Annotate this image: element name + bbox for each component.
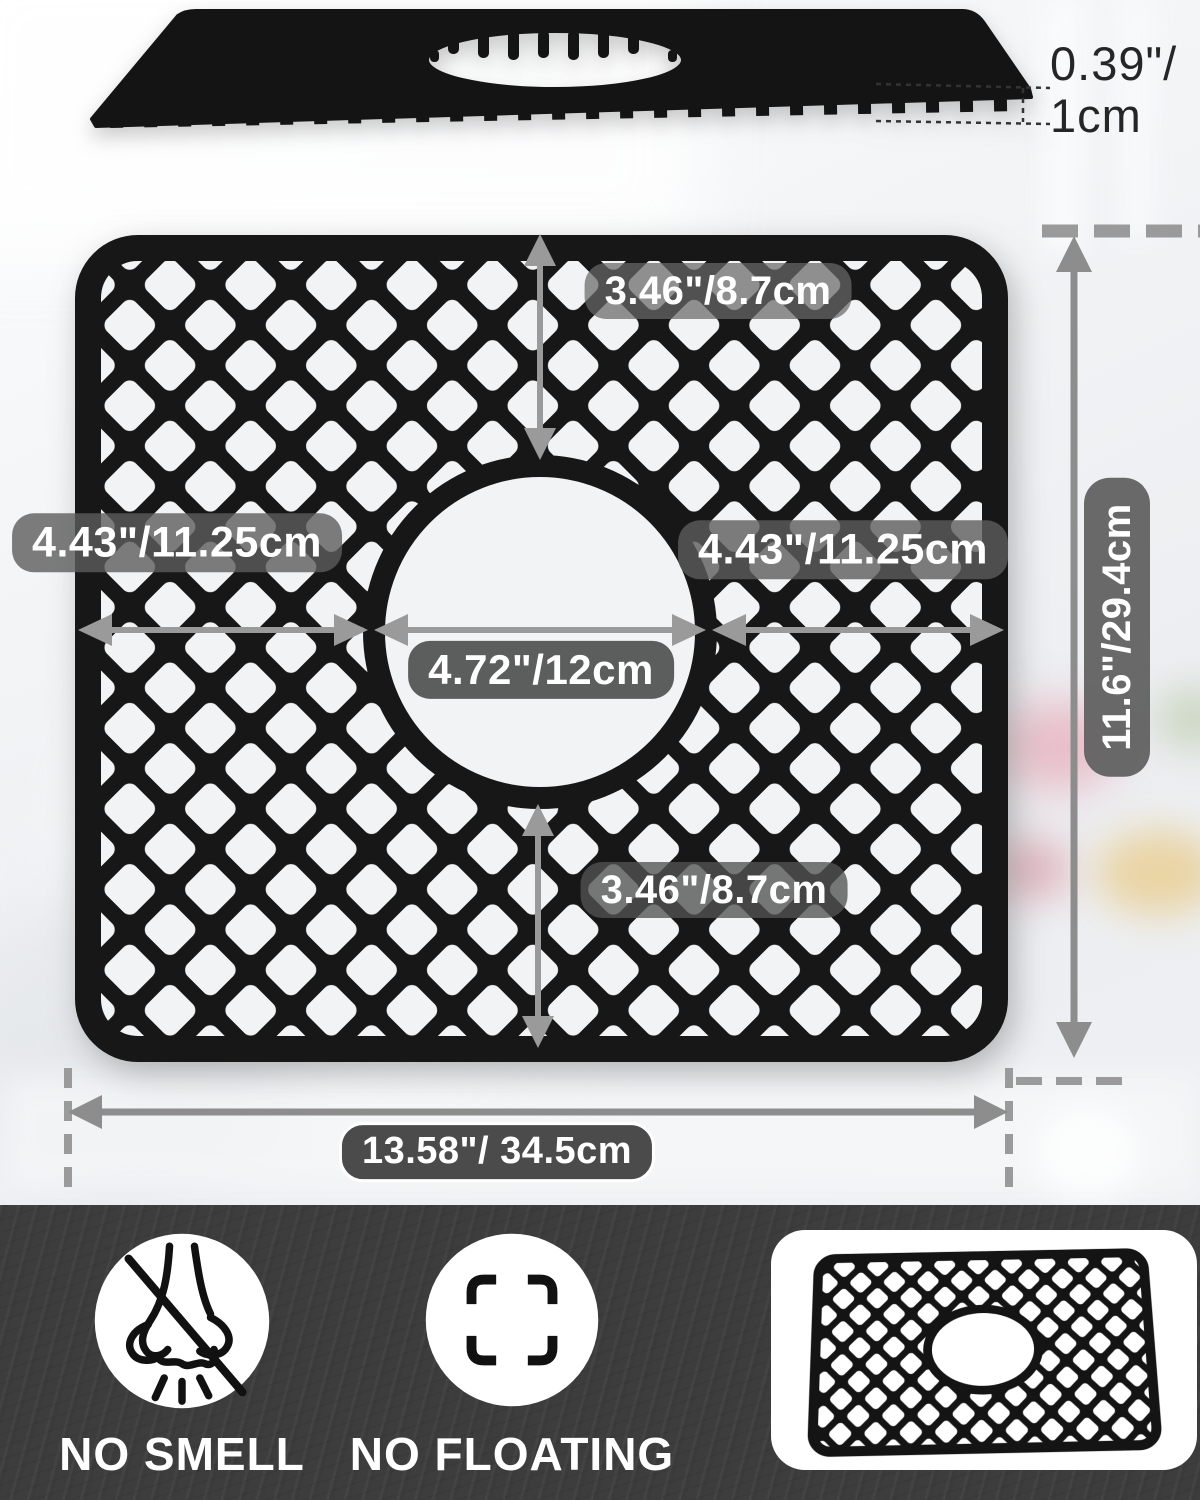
- thickness-dimension-label: 0.39"/ 1cm: [1050, 38, 1177, 141]
- product-thumbnail: [803, 1245, 1167, 1460]
- mat-side-feet: [110, 96, 1022, 113]
- mat-side-inner-feet: [430, 30, 677, 62]
- mat-drain-hole: [374, 466, 706, 798]
- background-shade: [0, 880, 300, 1210]
- thickness-guide-lines: [876, 84, 1050, 124]
- extension-guide-lines: [68, 231, 1200, 1192]
- arrow-hole-to-top: [524, 234, 556, 460]
- arrow-hole-to-bottom: [522, 804, 554, 1048]
- background-streak: [7, 254, 793, 1207]
- product-dimension-infographic: 0.39"/ 1cm: [0, 0, 1200, 1500]
- thickness-line2: 1cm: [1050, 90, 1177, 142]
- dimension-label-hole-to-bottom: 3.46"/8.7cm: [581, 862, 848, 918]
- background-blur-vegetable: [1096, 830, 1200, 915]
- dimension-label-hole-to-top: 3.46"/8.7cm: [585, 263, 852, 319]
- thumbnail-mat-hole: [927, 1308, 1040, 1391]
- background-highlight: [0, 0, 700, 260]
- feature-label-no-floating: NO FLOATING: [330, 1427, 694, 1481]
- mat-side-slab: [92, 11, 1031, 126]
- dimension-label-left-of-hole: 4.43"/11.25cm: [12, 513, 342, 572]
- background-blur-vegetable: [1155, 688, 1200, 750]
- dimension-label-overall-height: 11.6"/29.4cm: [1084, 477, 1150, 776]
- background-blur-vegetable: [998, 838, 1070, 900]
- feature-label-no-smell: NO SMELL: [0, 1427, 364, 1481]
- dimension-label-hole-diameter: 4.72"/12cm: [408, 641, 674, 699]
- product-thumbnail-card: [771, 1230, 1197, 1470]
- no-floating-icon: [424, 1230, 600, 1410]
- thickness-line1: 0.39"/: [1050, 38, 1177, 90]
- no-smell-icon: [92, 1232, 272, 1410]
- arrow-right-of-hole: [712, 614, 1004, 646]
- dimension-label-right-of-hole: 4.43"/11.25cm: [678, 520, 1008, 579]
- arrow-left-of-hole: [78, 614, 368, 646]
- mat-side-view: [0, 0, 1200, 185]
- background-blur-dish: [1035, 1105, 1140, 1200]
- features-band: NO SMELL NO FLOATING: [0, 1205, 1200, 1500]
- dimension-label-overall-width: 13.58"/ 34.5cm: [339, 1122, 655, 1182]
